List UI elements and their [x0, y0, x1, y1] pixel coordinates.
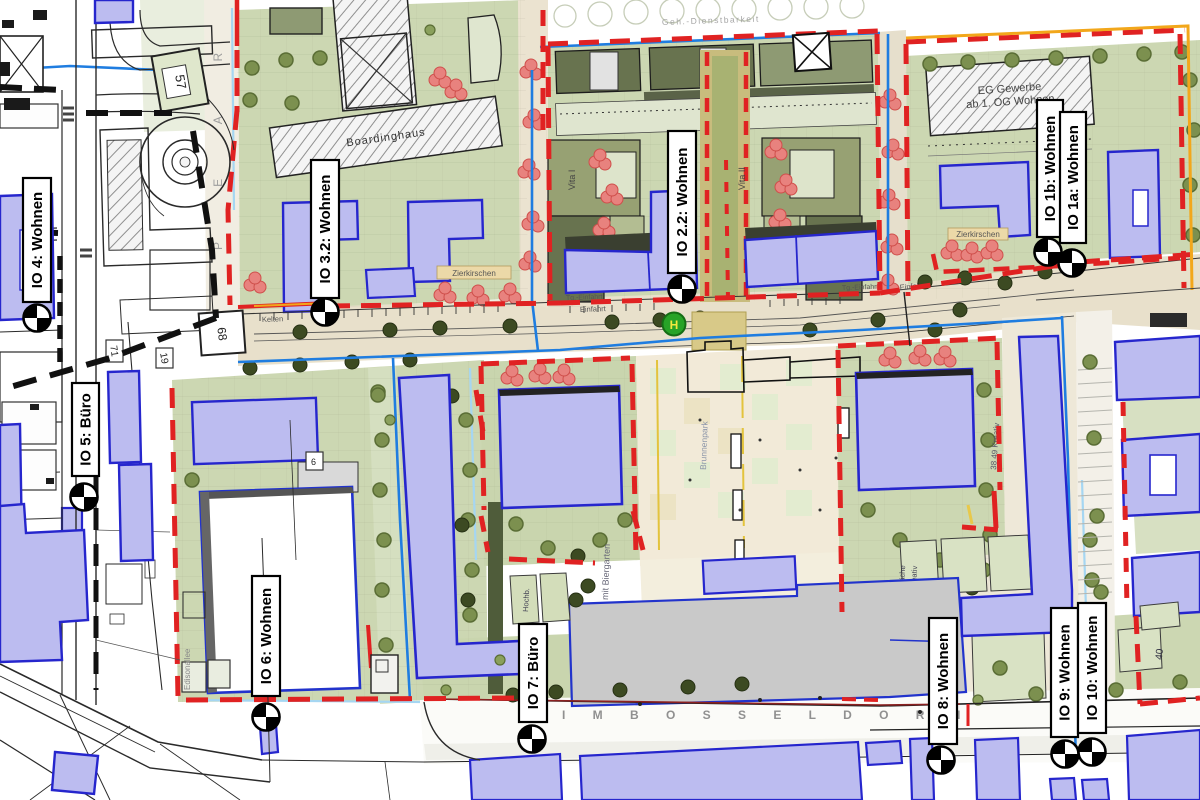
- svg-text:Kelten: Kelten: [262, 314, 284, 324]
- svg-text:IO 3.2: Wohnen: IO 3.2: Wohnen: [317, 175, 334, 284]
- svg-text:57: 57: [172, 73, 189, 90]
- svg-text:Brunnenpark: Brunnenpark: [698, 420, 710, 470]
- svg-text:IO 10: Wohnen: IO 10: Wohnen: [1084, 616, 1101, 721]
- svg-text:Zierkirschen: Zierkirschen: [452, 269, 496, 278]
- svg-text:I M B O S S E L D O R N: I M B O S S E L D O R N: [562, 708, 972, 722]
- svg-text:mit Biergarten: mit Biergarten: [600, 544, 612, 600]
- svg-text:IO 4: Wohnen: IO 4: Wohnen: [29, 192, 46, 288]
- svg-text:Vita II: Vita II: [737, 167, 747, 190]
- svg-text:6: 6: [311, 457, 316, 467]
- svg-text:IO 8: Wohnen: IO 8: Wohnen: [935, 633, 952, 729]
- svg-text:Edisonallee: Edisonallee: [183, 648, 192, 690]
- svg-text:Zierkirschen: Zierkirschen: [956, 230, 1000, 239]
- svg-text:Hochb.: Hochb.: [521, 588, 531, 612]
- svg-text:IO 6: Wohnen: IO 6: Wohnen: [258, 588, 275, 684]
- svg-text:P E A R S O N: P E A R S O N: [211, 0, 225, 250]
- svg-text:Vita I: Vita I: [567, 170, 577, 190]
- svg-text:40: 40: [1154, 648, 1166, 660]
- svg-text:IO 1b: Wohnen: IO 1b: Wohnen: [1042, 116, 1059, 222]
- svg-text:IO 2.2: Wohnen: IO 2.2: Wohnen: [674, 148, 691, 257]
- svg-text:68: 68: [214, 326, 230, 341]
- svg-text:71: 71: [107, 345, 120, 358]
- svg-text:IO 9: Wohnen: IO 9: Wohnen: [1057, 624, 1074, 720]
- svg-text:H: H: [670, 318, 679, 332]
- svg-text:IO 7: Büro: IO 7: Büro: [525, 637, 542, 710]
- svg-text:IO 1a: Wohnen: IO 1a: Wohnen: [1065, 125, 1082, 230]
- svg-text:IO 5: Büro: IO 5: Büro: [78, 393, 95, 466]
